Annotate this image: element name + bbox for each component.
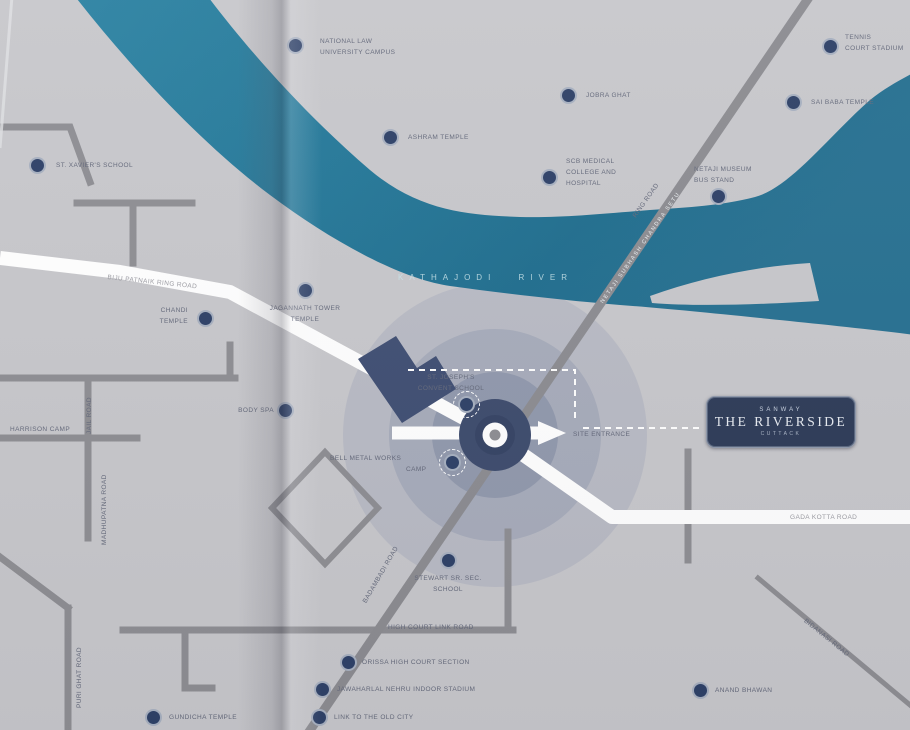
poi-dot-jagannath-tower (297, 282, 314, 299)
road-label-high-court-link: HIGH COURT LINK ROAD (388, 622, 474, 633)
poi-dot-old-city-link (311, 709, 328, 726)
poi-dot-chandi-temple (197, 310, 214, 327)
poi-label: ORISSA HIGH COURT SECTION (362, 657, 470, 668)
poi-label: ANAND BHAWAN (715, 685, 772, 696)
project-brand: SANWAY (707, 407, 855, 413)
road-label-madhupatna: MADHUPATNA ROAD (99, 474, 110, 545)
poi-dot-st-xaviers (29, 157, 46, 174)
road-label-kotta-road: GADA KOTTA ROAD (790, 512, 857, 523)
poi-dot-indoor-stadium (314, 681, 331, 698)
poi-label: JAWAHARLAL NEHRU INDOOR STADIUM (337, 684, 475, 695)
poi-label: BELL METAL WORKS (330, 453, 400, 464)
project-name: THE RIVERSIDE (707, 414, 855, 430)
river-label: KATHAJODI RIVER (398, 272, 573, 283)
road-label-jail-road: JAIL ROAD (84, 397, 95, 434)
poi-dot-ashram-temple (382, 129, 399, 146)
poi-label: JAGANNATH TOWERTEMPLE (258, 303, 352, 325)
poi-dot-stewart-school (440, 552, 457, 569)
poi-dot-body-spa (277, 402, 294, 419)
area-label-harrison-camp: HARRISON CAMP (10, 424, 70, 435)
project-location: CUTTACK (707, 431, 855, 437)
poi-label: ST. JOSEPH'SCONVENT SCHOOL (412, 372, 490, 394)
poi-label: CHANDITEMPLE (130, 305, 188, 327)
poi-dot-scb-medical (541, 169, 558, 186)
poi-dot-gundicha-temple (145, 709, 162, 726)
poi-label: ST. XAVIER'S SCHOOL (56, 160, 133, 171)
poi-label: ASHRAM TEMPLE (408, 132, 469, 143)
poi-label: JOBRA GHAT (586, 90, 631, 101)
roundabout-icon (483, 423, 508, 448)
poi-label: STEWART SR. SEC.SCHOOL (400, 573, 496, 595)
map-artwork (0, 0, 910, 730)
project-badge: SANWAY THE RIVERSIDE CUTTACK (706, 396, 856, 448)
poi-dot-netaji-museum (710, 188, 727, 205)
poi-dot-jobra-ghat (560, 87, 577, 104)
site-entrance-label: SITE ENTRANCE (573, 429, 630, 440)
poi-dot-high-court (340, 654, 357, 671)
poi-dot-sai-baba-temple (785, 94, 802, 111)
poi-dot-anand-bhawan (692, 682, 709, 699)
poi-label: NETAJI MUSEUMBUS STAND (694, 164, 752, 186)
poi-label: TENNISCOURT STADIUM (845, 32, 904, 54)
poi-dot-bell-metal (444, 454, 461, 471)
poi-label: BODY SPA (222, 405, 274, 416)
poi-label: NATIONAL LAWUNIVERSITY CAMPUS (320, 36, 395, 58)
poi-label: GUNDICHA TEMPLE (169, 712, 237, 723)
poi-label: LINK TO THE OLD CITY (334, 712, 414, 723)
poi-dot-tennis-stadium (822, 38, 839, 55)
poi-label: CAMP (406, 464, 426, 475)
poi-dot-law-university (287, 37, 304, 54)
road-label-puri-ghat: PURI GHAT ROAD (74, 647, 85, 708)
map-canvas: ST. XAVIER'S SCHOOL NATIONAL LAWUNIVERSI… (0, 0, 910, 730)
poi-label: SCB MEDICALCOLLEGE ANDHOSPITAL (566, 156, 616, 189)
poi-label: SAI BABA TEMPLE (811, 97, 874, 108)
poi-dot-st-josephs (458, 396, 475, 413)
